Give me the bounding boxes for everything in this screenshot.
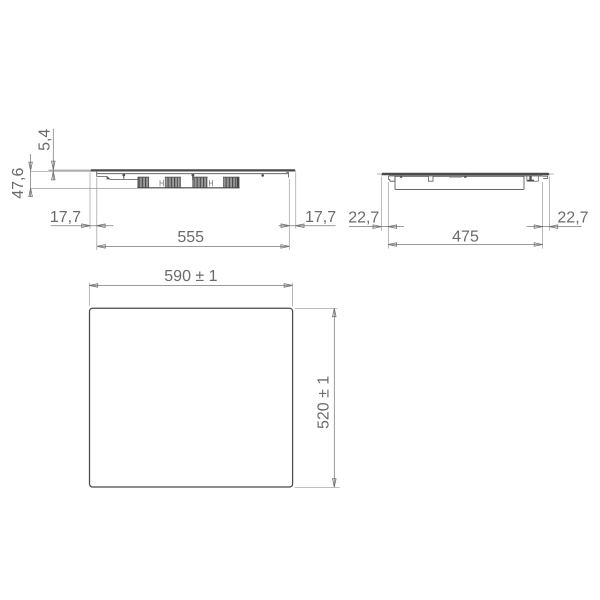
svg-text:22,7: 22,7 (557, 209, 588, 226)
svg-text:17,7: 17,7 (50, 209, 81, 226)
svg-text:520 ± 1: 520 ± 1 (315, 376, 332, 429)
svg-text:555: 555 (177, 229, 204, 246)
svg-text:5,4: 5,4 (36, 129, 53, 151)
svg-text:590 ± 1: 590 ± 1 (164, 268, 217, 285)
svg-text:22,7: 22,7 (348, 209, 379, 226)
svg-text:475: 475 (452, 229, 479, 246)
svg-text:17,7: 17,7 (305, 209, 336, 226)
svg-text:47,6: 47,6 (10, 168, 27, 199)
